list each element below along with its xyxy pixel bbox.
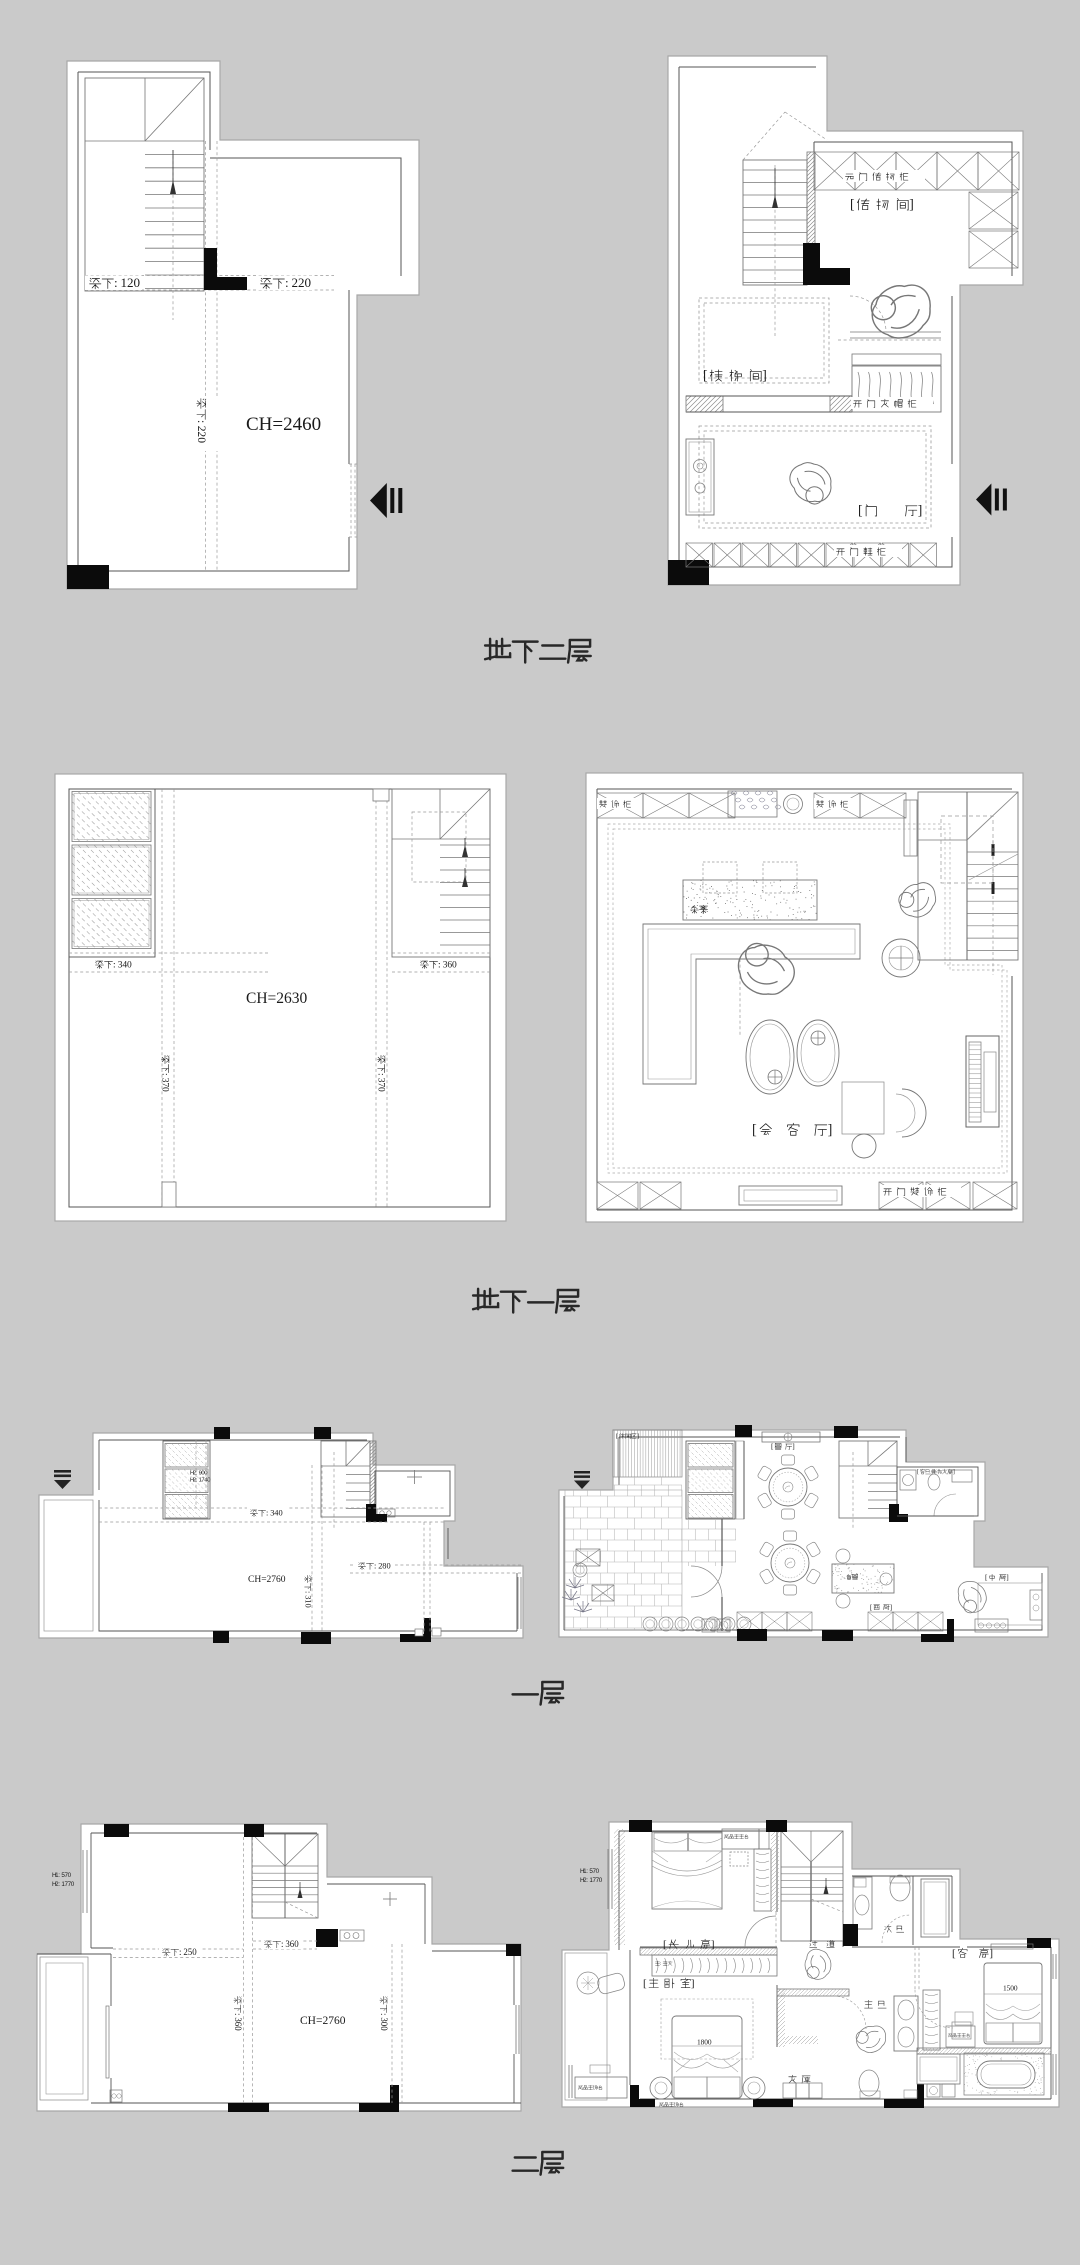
svg-text:0: 0 <box>279 1509 283 1518</box>
svg-text:0: 0 <box>305 275 312 290</box>
svg-text:[: [ <box>917 1470 919 1476</box>
svg-text:0: 0 <box>127 960 132 970</box>
svg-text:CH=2760: CH=2760 <box>248 1575 286 1585</box>
svg-text::: : <box>266 1509 268 1518</box>
svg-text:0: 0 <box>387 1562 391 1571</box>
svg-text:[: [ <box>850 197 855 212</box>
svg-text:CH=2760: CH=2760 <box>300 2015 346 2027</box>
svg-text:[: [ <box>752 1122 757 1138</box>
svg-text:CH=2460: CH=2460 <box>246 414 321 435</box>
svg-text:0: 0 <box>195 437 208 443</box>
svg-text::: : <box>376 1073 386 1076</box>
svg-text::: : <box>113 960 116 970</box>
svg-text:]: ] <box>989 1948 993 1960</box>
svg-text::: : <box>58 1872 60 1879</box>
svg-text:[: [ <box>643 1978 647 1990</box>
svg-text:0: 0 <box>379 2026 389 2031</box>
svg-text:]: ] <box>711 1939 715 1951</box>
svg-text:0: 0 <box>599 1877 603 1884</box>
svg-text:[: [ <box>858 503 863 518</box>
svg-text::: : <box>233 2013 243 2015</box>
svg-text::: : <box>285 275 289 290</box>
svg-text:]: ] <box>691 1978 695 1990</box>
svg-text:[: [ <box>952 1948 956 1960</box>
svg-text::: : <box>438 960 441 970</box>
svg-text::: : <box>281 1939 283 1949</box>
svg-text:0: 0 <box>452 960 457 970</box>
svg-text:0: 0 <box>303 1604 312 1608</box>
svg-text:]: ] <box>792 1442 794 1451</box>
svg-text::: : <box>160 1073 170 1076</box>
svg-text:0: 0 <box>294 1939 299 1949</box>
svg-text::: : <box>586 1868 588 1875</box>
svg-text:]: ] <box>1006 1573 1008 1582</box>
svg-text::: : <box>586 1877 588 1884</box>
svg-text:]: ] <box>762 368 767 383</box>
svg-text:]: ] <box>828 1122 833 1138</box>
svg-text:0: 0 <box>160 1087 170 1092</box>
svg-text:0: 0 <box>708 2038 712 2047</box>
svg-text::: : <box>114 275 118 290</box>
svg-text::: : <box>374 1562 376 1571</box>
svg-text:]: ] <box>918 503 923 518</box>
svg-text:[: [ <box>703 368 708 383</box>
svg-text::: : <box>303 1591 312 1593</box>
svg-text:0: 0 <box>68 1872 72 1879</box>
svg-text:0: 0 <box>376 1087 386 1092</box>
svg-text::: : <box>58 1881 60 1888</box>
svg-text:0: 0 <box>134 275 141 290</box>
svg-text:CH=2630: CH=2630 <box>246 990 308 1007</box>
svg-text::: : <box>195 420 208 423</box>
svg-text:]: ] <box>637 1433 639 1440</box>
svg-text:]: ] <box>890 1604 892 1611</box>
svg-text:[: [ <box>663 1939 667 1951</box>
svg-text:0: 0 <box>192 1947 197 1957</box>
svg-text:0: 0 <box>1014 1984 1018 1993</box>
svg-text::: : <box>379 2013 389 2015</box>
svg-text:]: ] <box>953 1470 955 1476</box>
svg-text:0: 0 <box>596 1868 600 1875</box>
svg-text:0: 0 <box>233 2026 243 2031</box>
svg-text:0: 0 <box>71 1881 75 1888</box>
svg-text:]: ] <box>909 197 914 212</box>
svg-text:[: [ <box>616 1433 618 1440</box>
svg-text:0: 0 <box>207 1478 210 1484</box>
svg-text::: : <box>179 1947 181 1957</box>
